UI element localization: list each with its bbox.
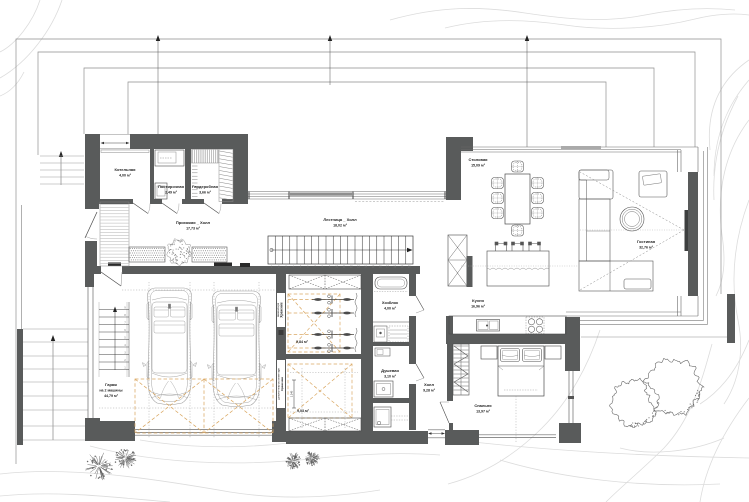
svg-text:44,79 м²: 44,79 м² (104, 394, 119, 398)
svg-text:9: 9 (124, 307, 126, 309)
svg-text:Гараж: Гараж (105, 382, 117, 387)
svg-text:4,00 м²: 4,00 м² (384, 307, 397, 311)
svg-text:Гостиная: Гостиная (637, 239, 656, 244)
svg-text:4,00 м²: 4,00 м² (119, 174, 132, 178)
svg-text:Хранение: Хранение (280, 302, 284, 317)
svg-text:9,84 м²: 9,84 м² (296, 340, 309, 344)
svg-text:16,96 м²: 16,96 м² (471, 305, 486, 309)
svg-text:Лестница _ Холл: Лестница _ Холл (323, 217, 357, 222)
svg-text:17,73 м²: 17,73 м² (186, 227, 201, 231)
svg-text:Хранение: Хранение (280, 377, 284, 392)
svg-text:Кухня: Кухня (472, 298, 484, 303)
svg-text:13,97 м²: 13,97 м² (476, 410, 491, 414)
svg-text:2,49 м²: 2,49 м² (165, 191, 178, 195)
svg-text:Хозблок: Хозблок (382, 300, 398, 305)
svg-text:18,02 м²: 18,02 м² (333, 224, 348, 228)
svg-text:15,09 м²: 15,09 м² (471, 164, 486, 168)
svg-text:Душевая: Душевая (381, 368, 399, 373)
svg-text:инвентаря: инвентаря (276, 302, 280, 317)
svg-text:2: 2 (124, 360, 126, 362)
svg-text:5: 5 (124, 337, 126, 339)
svg-text:Постирочная: Постирочная (158, 184, 185, 189)
svg-text:Котельная: Котельная (115, 167, 137, 172)
svg-text:Прихожая _ Холл: Прихожая _ Холл (176, 220, 211, 225)
svg-text:дополнительного инвентаря: дополнительного инвентаря (278, 368, 281, 400)
svg-text:3,10 м²: 3,10 м² (384, 375, 397, 379)
svg-text:6: 6 (124, 330, 126, 332)
svg-text:Столовая: Столовая (468, 157, 488, 162)
svg-text:1.240: 1.240 (289, 390, 293, 397)
svg-text:3,66 м²: 3,66 м² (199, 191, 212, 195)
svg-text:9,28 м²: 9,28 м² (423, 389, 436, 393)
svg-text:Спальня: Спальня (474, 403, 492, 408)
svg-text:4: 4 (124, 345, 126, 347)
svg-text:8: 8 (124, 315, 126, 317)
svg-text:9,03 м²: 9,03 м² (297, 409, 310, 413)
svg-text:7: 7 (124, 322, 126, 324)
svg-text:32,76 м²: 32,76 м² (639, 246, 654, 250)
svg-text:на 2 машины: на 2 машины (99, 389, 122, 393)
svg-text:1: 1 (124, 367, 126, 369)
svg-text:Холл: Холл (424, 382, 435, 387)
svg-text:3: 3 (124, 352, 126, 354)
svg-text:Гардеробная: Гардеробная (192, 184, 219, 189)
